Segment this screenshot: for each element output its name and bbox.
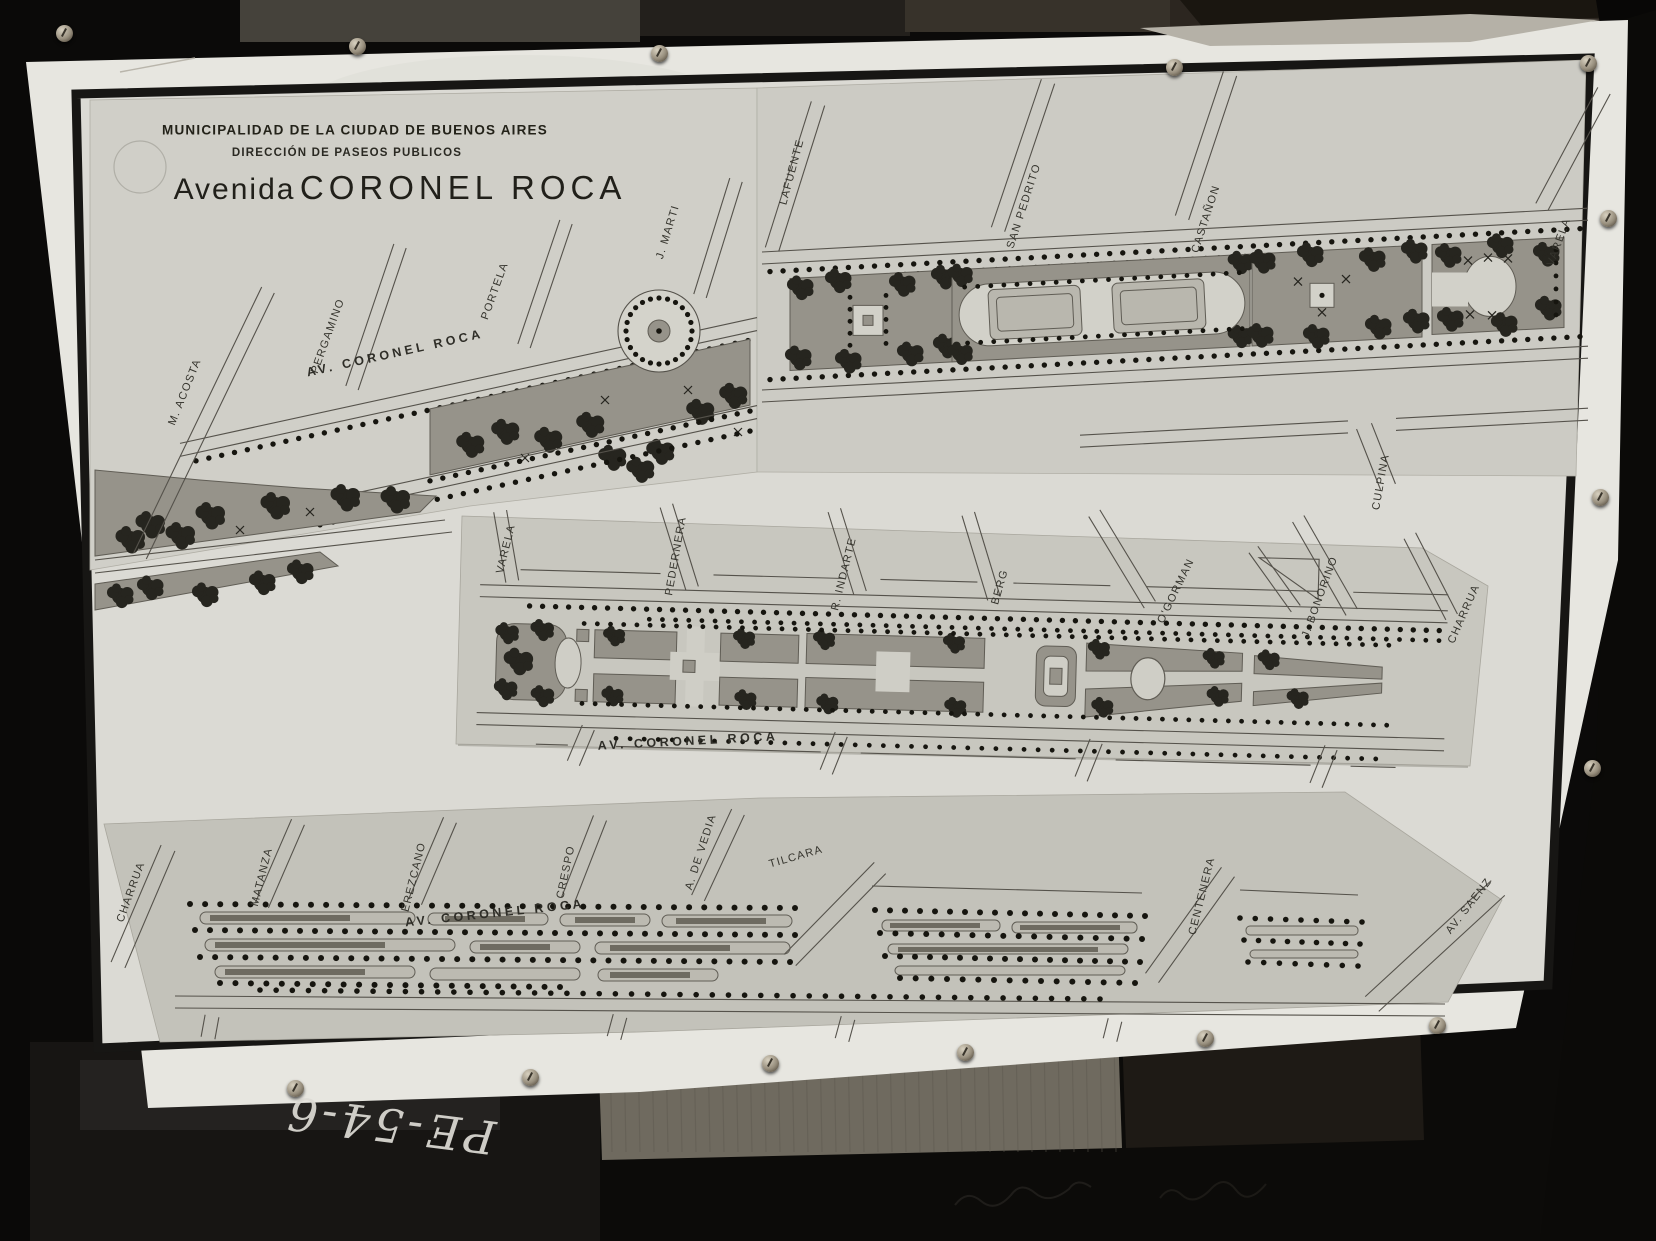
archival-photo: MUNICIPALIDAD DE LA CIUDAD DE BUENOS AIR… xyxy=(0,0,1656,1241)
plan-drawing xyxy=(0,0,1656,1241)
